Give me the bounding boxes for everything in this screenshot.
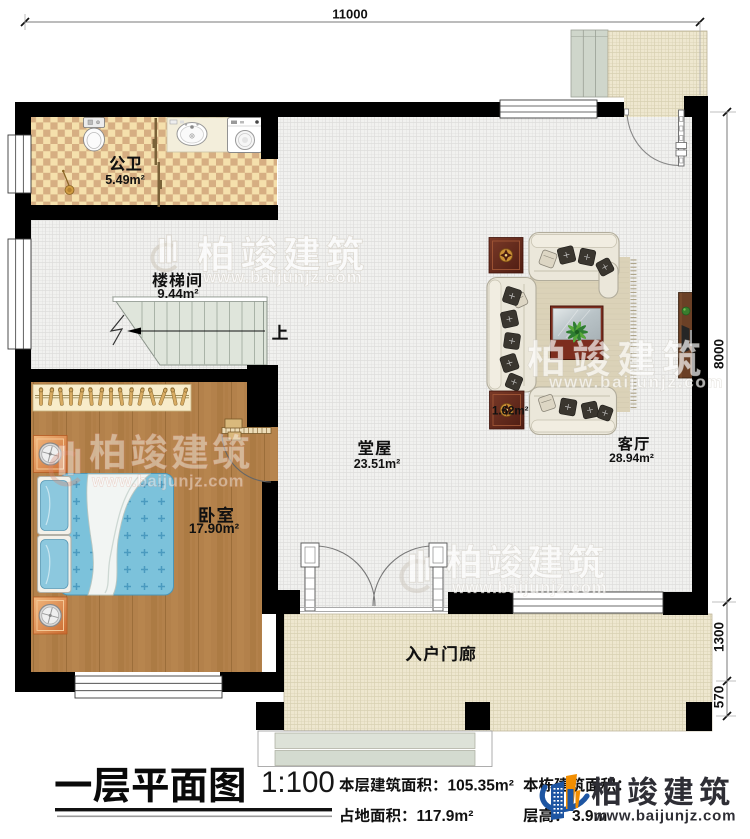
svg-text:www.baijunjz.com: www.baijunjz.com: [548, 373, 725, 392]
svg-text:23.51m²: 23.51m²: [354, 457, 401, 471]
svg-text:28.94m²: 28.94m²: [609, 451, 654, 465]
svg-text:www.baijunjz.com: www.baijunjz.com: [91, 473, 244, 491]
svg-text:www.baijunjz.com: www.baijunjz.com: [451, 579, 607, 597]
svg-text:5.49m²: 5.49m²: [105, 173, 145, 187]
svg-text:8000: 8000: [712, 339, 727, 369]
svg-text:1:100: 1:100: [261, 766, 335, 799]
svg-text:11000: 11000: [332, 7, 367, 22]
svg-text:9.44m²: 9.44m²: [157, 286, 199, 301]
svg-text:1300: 1300: [712, 622, 727, 652]
svg-text:105.35m²: 105.35m²: [448, 778, 514, 795]
svg-text:1.62m²: 1.62m²: [492, 406, 529, 418]
svg-text:117.9m²: 117.9m²: [417, 808, 474, 825]
svg-text:www.baijunjz.com: www.baijunjz.com: [202, 268, 363, 287]
svg-text:17.90m²: 17.90m²: [189, 521, 240, 536]
svg-text:www.baijunjz.com: www.baijunjz.com: [593, 808, 736, 825]
svg-text:570: 570: [712, 686, 727, 709]
